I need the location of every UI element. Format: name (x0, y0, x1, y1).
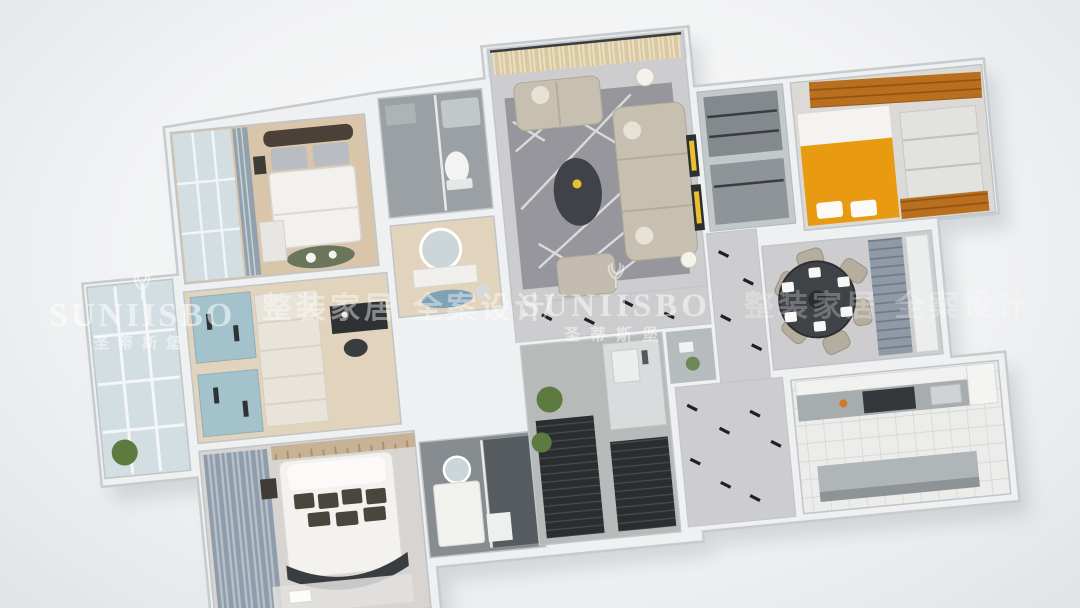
arched-mirror (443, 456, 471, 484)
quilted-wardrobe-panels (900, 105, 984, 198)
orange-bed-blanket (800, 138, 899, 226)
watermark-tagline-left: 整装家居 全案设计 (262, 291, 548, 326)
bathroom-vent (385, 103, 417, 126)
entry-floor (675, 377, 796, 527)
room-bedroom-orange (790, 65, 995, 231)
magazine (289, 589, 312, 603)
room-bathroom-main (378, 89, 493, 218)
teal-cabinet (198, 369, 264, 436)
closet-cubby (710, 158, 789, 225)
nightstand (260, 478, 278, 499)
room-bathroom-master (419, 431, 546, 558)
nightstand (253, 156, 267, 175)
bath-vanity-cabinet (433, 481, 485, 547)
floorplan-svg: SUNIISBO 圣蒂斯堡 整装家居 全案设计 / SUNIISBO 圣蒂斯堡 … (0, 0, 1080, 608)
floorplan-render-canvas: SUNIISBO 圣蒂斯堡 整装家居 全案设计 / SUNIISBO 圣蒂斯堡 … (0, 0, 1080, 608)
shower-tray (440, 97, 481, 129)
desk (259, 220, 287, 262)
bed-pillow (270, 146, 308, 171)
room-closets (697, 84, 796, 232)
sink (930, 384, 962, 405)
watermark-brand-cn-left: 圣蒂斯堡 (93, 334, 190, 352)
room-kitchen (791, 360, 1011, 513)
entry-partition (666, 328, 717, 384)
room-bedroom-secondary (170, 114, 379, 284)
watermark-brand-center: SUNIISBO (521, 288, 711, 324)
watermark-tagline-right: 整装家居 全案设计 (744, 289, 1030, 324)
fridge (966, 363, 998, 405)
washer (486, 512, 513, 542)
entry-decor (679, 342, 694, 353)
room-utility (520, 332, 681, 545)
closet-cubby (703, 90, 782, 157)
room-bedroom-master (199, 431, 431, 608)
dark-slat-deck (610, 436, 676, 531)
bed-pillow (850, 199, 877, 217)
bed-pillow (312, 142, 350, 167)
room-living (486, 29, 711, 305)
watermark-brand-left: SUNIISBO (49, 297, 236, 334)
bed-pillow (816, 201, 843, 219)
cabinet-door (611, 349, 640, 383)
watermark-brand-cn-center: 圣蒂斯堡 (563, 325, 668, 344)
